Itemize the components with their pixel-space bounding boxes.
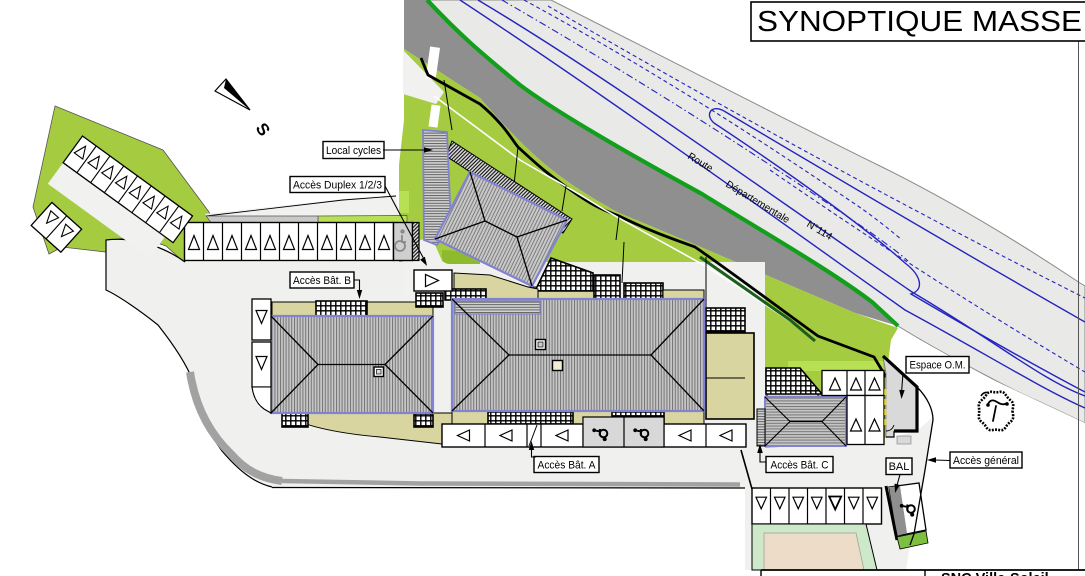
svg-text:Accès général: Accès général — [953, 455, 1019, 467]
svg-text:Accès Bât. A: Accès Bât. A — [538, 459, 597, 471]
svg-text:BAL: BAL — [889, 461, 910, 473]
svg-text:Espace O.M.: Espace O.M. — [910, 360, 966, 372]
svg-text:Accès Bât. C: Accès Bât. C — [771, 459, 829, 471]
svg-text:SNC Ville-Soleil: SNC Ville-Soleil — [941, 571, 1049, 576]
svg-text:SYNOPTIQUE MASSE: SYNOPTIQUE MASSE — [757, 6, 1082, 38]
svg-text:Local cycles: Local cycles — [326, 145, 381, 157]
svg-text:Accès Duplex 1/2/3: Accès Duplex 1/2/3 — [293, 179, 382, 191]
svg-text:Accès Bât. B: Accès Bât. B — [293, 275, 351, 287]
